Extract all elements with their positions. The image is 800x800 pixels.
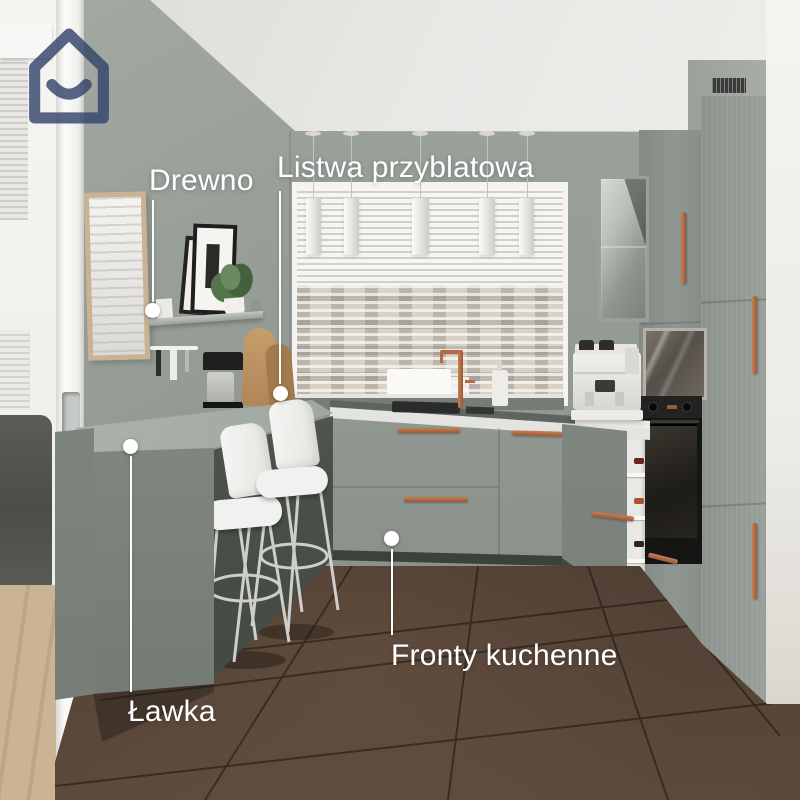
hanging-utensil: [156, 350, 161, 376]
oven-knob: [683, 403, 691, 411]
espresso-machine: [571, 340, 645, 424]
espresso-base: [571, 410, 643, 420]
built-in-oven: [641, 396, 702, 564]
portafilter-handle: [615, 392, 624, 406]
coffee-carafe: [207, 372, 234, 402]
espresso-cup: [599, 340, 614, 350]
wood-floor-adjacent-room: [0, 585, 60, 800]
pendant-shade: [306, 198, 321, 255]
hanging-utensil: [185, 350, 189, 372]
oven-display: [667, 405, 677, 409]
wine-bottle: [634, 498, 644, 504]
callout-fronty-dot[interactable]: [384, 531, 399, 546]
venetian-blinds-open: [297, 285, 563, 401]
callout-fronty-line: [391, 549, 393, 635]
rack-slat: [626, 473, 645, 477]
faucet-column: [458, 351, 463, 408]
grinder-tower: [625, 348, 639, 374]
pendant-ceiling-mount: [305, 131, 321, 136]
tall-cabinet-handle: [681, 212, 686, 284]
callout-drewno-line: [152, 200, 154, 302]
pendant-shade: [519, 198, 534, 255]
espresso-group-head: [595, 380, 615, 392]
hanging-utensil: [170, 350, 177, 380]
pendant-ceiling-mount: [479, 131, 495, 136]
oven-handle: [643, 420, 699, 423]
callout-lawka-line: [130, 456, 132, 692]
utensil-rail: [150, 346, 198, 350]
wine-bottle: [634, 541, 644, 547]
pendant-ceiling-mount: [412, 131, 428, 136]
callout-drewno-label[interactable]: Drewno: [149, 164, 254, 198]
faucet-handle: [465, 380, 475, 383]
copper-faucet: [440, 350, 476, 410]
coffee-maker-top: [203, 352, 243, 370]
tall-cabinet-right: [701, 96, 767, 710]
drawer-seam: [332, 486, 498, 488]
drawer-handle: [398, 428, 460, 433]
sofa: [0, 415, 52, 587]
callout-listwa-label[interactable]: Listwa przyblatowa: [277, 151, 534, 185]
callout-listwa-line: [279, 191, 281, 384]
oven-knob: [649, 403, 657, 411]
rack-slat: [626, 559, 645, 563]
portafilter-handle: [585, 392, 594, 406]
callout-lawka-dot[interactable]: [123, 439, 138, 454]
soap-dispenser: [492, 370, 508, 406]
annotated-kitchen-image: Drewno Listwa przyblatowa Ławka Fronty k…: [0, 0, 800, 800]
coffee-maker-base: [203, 402, 243, 408]
pendant-shade: [344, 198, 359, 255]
adjacent-room-blinds: [0, 52, 28, 220]
foreground-white-wall: [766, 0, 800, 800]
cabinet-seam: [701, 502, 767, 507]
cabinet-rail: [601, 246, 646, 248]
oven-control-panel: [641, 396, 702, 418]
glass-front-wall-cabinet: [598, 176, 649, 322]
tall-cabinet-handle: [752, 296, 757, 374]
coffee-maker: [203, 352, 243, 408]
callout-drewno-dot[interactable]: [145, 303, 160, 318]
pendant-ceiling-mount: [343, 131, 359, 136]
cabinet-seam: [701, 298, 767, 303]
callout-lawka-label[interactable]: Ławka: [128, 695, 216, 729]
built-in-microwave: [643, 328, 707, 400]
wine-bottle: [634, 458, 644, 464]
floating-shelf: [143, 218, 264, 326]
faucet-spout-tip: [440, 353, 443, 363]
wood-framed-mirror: [84, 191, 150, 361]
pendant-shade: [412, 198, 429, 255]
oven-door-glass: [645, 424, 697, 538]
callout-listwa-dot[interactable]: [273, 386, 288, 401]
pendant-shade: [479, 198, 495, 255]
drawer-handle: [404, 497, 468, 502]
adjacent-room-blinds-lower: [0, 330, 30, 410]
callout-fronty-label[interactable]: Fronty kuchenne: [391, 639, 617, 673]
pendant-ceiling-mount: [519, 131, 535, 136]
soap-pump: [497, 362, 502, 371]
vent-grille: [712, 78, 746, 93]
tall-cabinet-handle: [752, 523, 757, 599]
espresso-cup: [579, 340, 594, 350]
cabinet-seam: [498, 428, 500, 562]
house-smile-logo: [28, 27, 110, 124]
